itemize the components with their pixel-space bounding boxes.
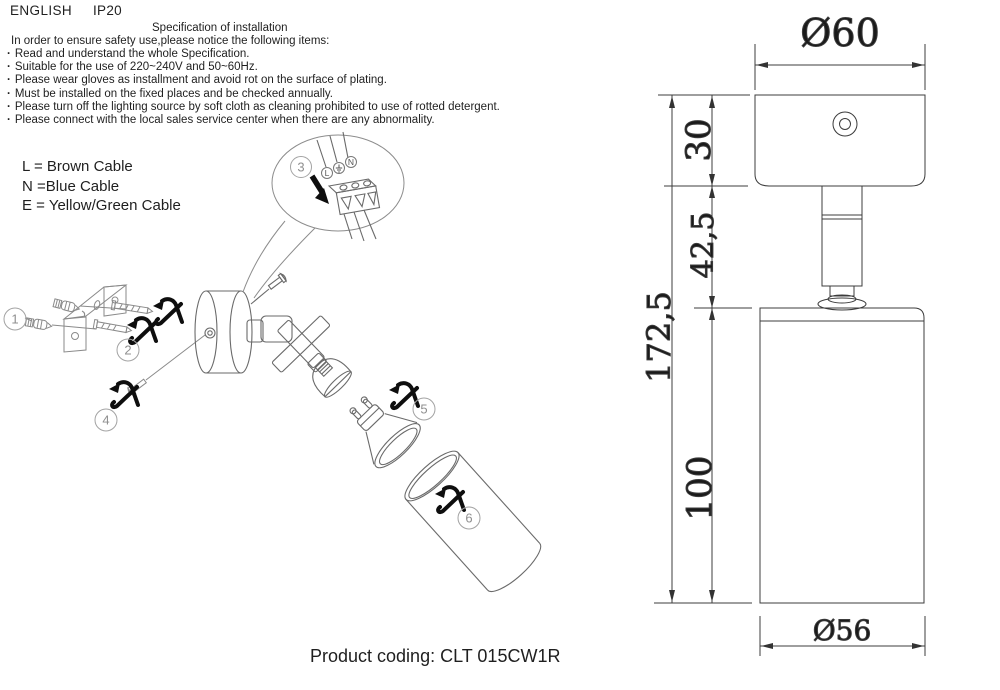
balloon-5: 5 — [420, 402, 427, 417]
dimension-drawing: Ø60 30 42,5 172,5 100 Ø56 — [640, 11, 925, 656]
wiring-callout: L N — [243, 132, 404, 298]
balloon-4: 4 — [102, 413, 109, 428]
balloon-1: 1 — [11, 312, 18, 327]
dim-stem — [818, 186, 866, 310]
mounting-bracket — [64, 285, 126, 352]
screw-rotation-icon — [435, 487, 464, 512]
dim-label-shade-diameter: Ø56 — [813, 614, 872, 647]
dim-label-canopy-diameter: Ø60 — [800, 11, 880, 55]
dim-label-overall-height: 172,5 — [640, 291, 678, 383]
balloon-6: 6 — [465, 511, 472, 526]
terminal-label-live: L — [325, 168, 330, 178]
screw-rotation-icon — [153, 299, 182, 324]
dim-label-stem-section: 42,5 — [686, 212, 721, 279]
shade-cylinder — [399, 444, 547, 598]
part-balloons — [4, 157, 480, 530]
product-coding: Product coding: CLT 015CW1R — [310, 646, 560, 667]
pointer-arrow-icon — [312, 176, 329, 204]
dim-label-shade-height: 100 — [680, 456, 720, 521]
terminal-label-neutral: N — [348, 157, 354, 167]
dim-shade — [760, 308, 924, 603]
screw-rotation-icon — [109, 382, 138, 407]
technical-drawing: L N — [0, 0, 1000, 690]
dim-stack — [709, 95, 715, 603]
exploded-diagram: L N — [4, 132, 547, 598]
installation-sheet: ENGLISH IP20 Specification of installati… — [0, 0, 1000, 690]
dim-label-canopy-height: 30 — [679, 118, 719, 161]
balloon-2: 2 — [124, 343, 131, 358]
swivel-arm — [247, 302, 353, 396]
canopy — [195, 291, 252, 373]
dim-canopy — [755, 95, 925, 186]
terminal-block — [329, 178, 380, 216]
balloon-3: 3 — [297, 160, 304, 175]
